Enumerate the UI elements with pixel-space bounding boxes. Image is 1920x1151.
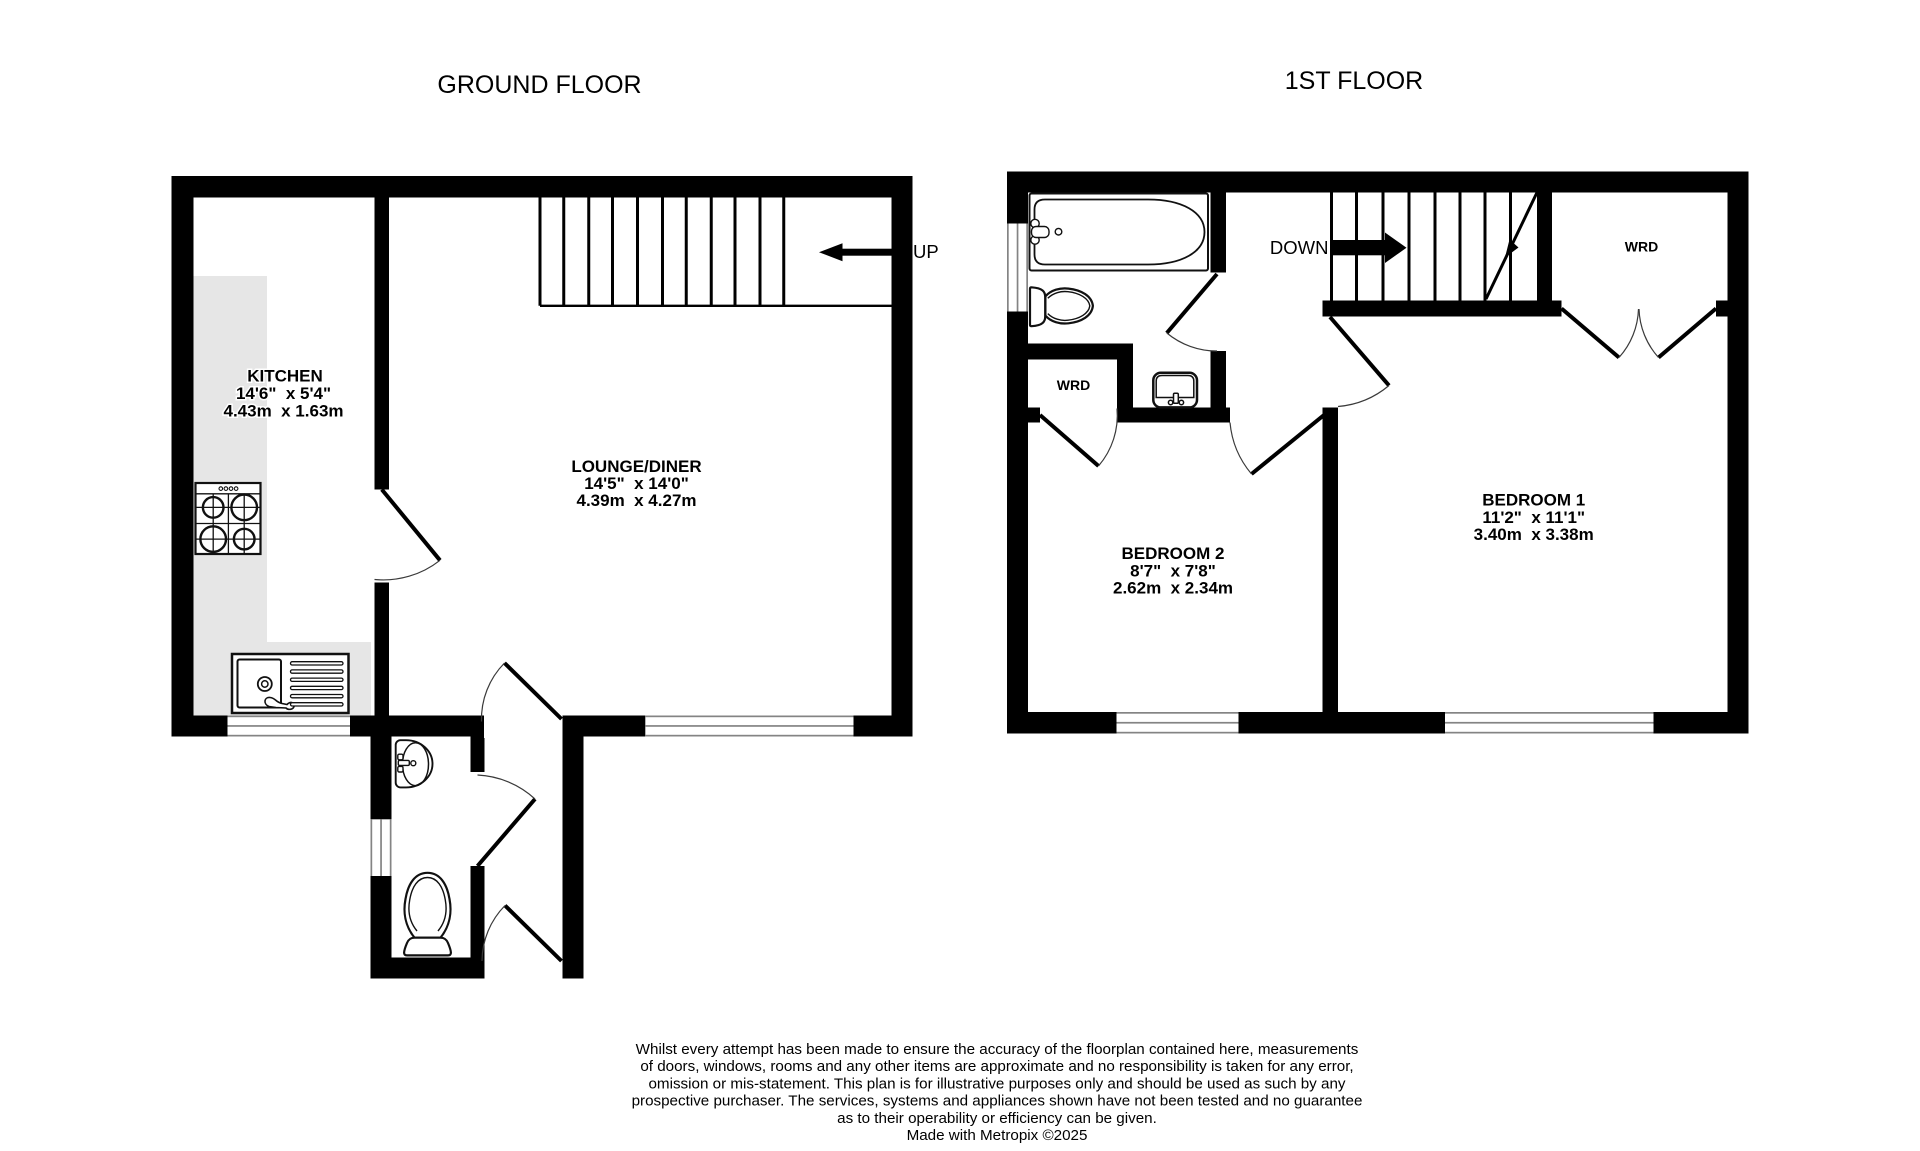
svg-text:of doors, windows, rooms and a: of doors, windows, rooms and any other i… — [640, 1058, 1353, 1075]
svg-text:3.40m x 3.38m: 3.40m x 3.38m — [1474, 525, 1594, 544]
svg-text:4.39m x 4.27m: 4.39m x 4.27m — [576, 491, 696, 510]
svg-text:8'7" x 7'8": 8'7" x 7'8" — [1130, 561, 1216, 580]
svg-text:omission or mis-statement. Thi: omission or mis-statement. This plan is … — [648, 1075, 1345, 1092]
svg-text:4.43m x 1.63m: 4.43m x 1.63m — [223, 402, 343, 421]
svg-text:KITCHEN: KITCHEN — [247, 367, 323, 386]
svg-text:BEDROOM 2: BEDROOM 2 — [1122, 544, 1225, 563]
svg-text:as to their operability or eff: as to their operability or efficiency ca… — [837, 1110, 1157, 1127]
svg-text:11'2" x 11'1": 11'2" x 11'1" — [1482, 508, 1585, 527]
svg-text:WRD: WRD — [1625, 238, 1658, 254]
svg-text:UP: UP — [913, 241, 939, 262]
svg-text:2.62m x 2.34m: 2.62m x 2.34m — [1113, 579, 1233, 598]
svg-text:prospective purchaser. The ser: prospective purchaser. The services, sys… — [632, 1093, 1363, 1110]
svg-text:1ST FLOOR: 1ST FLOOR — [1285, 67, 1423, 95]
svg-text:Made with Metropix ©2025: Made with Metropix ©2025 — [907, 1127, 1088, 1144]
svg-text:DOWN: DOWN — [1270, 237, 1329, 258]
svg-text:LOUNGE/DINER: LOUNGE/DINER — [571, 457, 701, 476]
svg-text:GROUND FLOOR: GROUND FLOOR — [437, 71, 641, 99]
svg-text:WRD: WRD — [1057, 377, 1090, 393]
svg-text:14'6" x 5'4": 14'6" x 5'4" — [236, 384, 331, 403]
svg-text:BEDROOM 1: BEDROOM 1 — [1482, 491, 1585, 510]
svg-text:Whilst every attempt has been: Whilst every attempt has been made to en… — [636, 1041, 1359, 1058]
svg-text:14'5" x 14'0": 14'5" x 14'0" — [584, 474, 689, 493]
